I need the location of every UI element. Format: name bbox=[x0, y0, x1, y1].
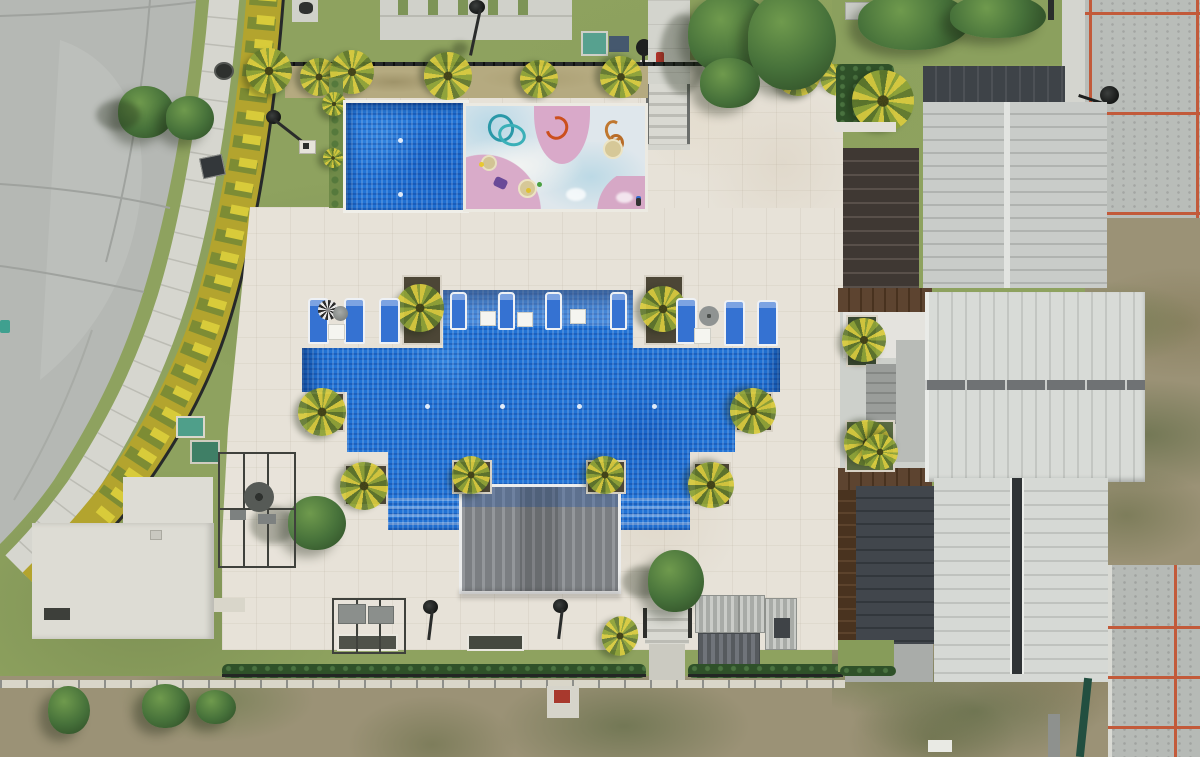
dot-yellow bbox=[479, 162, 484, 167]
wood-deck-north bbox=[838, 288, 932, 312]
gate-path bbox=[649, 644, 685, 684]
lap-pool bbox=[343, 100, 469, 213]
pool-step-entry bbox=[388, 498, 464, 530]
in-water-table bbox=[517, 312, 533, 327]
patio-grass-joint bbox=[458, 0, 468, 15]
side-table bbox=[694, 328, 711, 344]
parking-lot-southeast bbox=[1108, 565, 1200, 757]
stall-line bbox=[1108, 676, 1200, 679]
tree-large bbox=[700, 58, 760, 108]
canopy-shadow bbox=[459, 590, 621, 599]
tree bbox=[648, 550, 704, 612]
stall-line bbox=[1108, 626, 1200, 629]
in-water-lounger bbox=[498, 292, 515, 330]
iron-fence-south bbox=[222, 674, 646, 677]
iron-fence-south bbox=[688, 674, 843, 677]
bench bbox=[467, 634, 524, 651]
aerial-pool-scene bbox=[0, 0, 1200, 757]
fence-stub bbox=[1048, 0, 1054, 20]
tree bbox=[142, 684, 190, 728]
white-flat-roof-main bbox=[32, 523, 214, 639]
patio-grass-joint bbox=[398, 0, 408, 15]
spa-pad-teal bbox=[581, 31, 608, 56]
gray-lounger bbox=[368, 606, 394, 624]
slat-lounger-pair bbox=[698, 633, 760, 667]
tree-shadow bbox=[96, 100, 140, 130]
shade-canopy bbox=[459, 484, 621, 594]
splash-pad bbox=[463, 103, 648, 212]
roof-skylight-channel bbox=[1010, 478, 1024, 674]
roof-pad bbox=[44, 608, 70, 620]
dot-green bbox=[537, 182, 542, 187]
white-flat-roof-wing bbox=[123, 477, 213, 525]
teal-marker bbox=[0, 320, 10, 333]
gate-railing bbox=[688, 608, 692, 638]
roof-light-ribbed-north bbox=[923, 102, 1107, 288]
patio-grass-joint bbox=[428, 0, 438, 15]
spray-mist bbox=[616, 192, 633, 203]
side-table bbox=[328, 324, 345, 340]
pergola-dark-square bbox=[774, 618, 790, 638]
pool-light bbox=[398, 138, 403, 143]
lamp-base bbox=[303, 143, 309, 149]
roof-ridge-seam bbox=[1004, 102, 1010, 288]
road-tree bbox=[166, 96, 214, 140]
palm-tree bbox=[396, 284, 444, 332]
person bbox=[636, 198, 641, 206]
tree bbox=[48, 686, 90, 734]
white-pad bbox=[928, 740, 952, 752]
pool-light bbox=[425, 404, 430, 409]
deck-lounger bbox=[379, 298, 400, 344]
south-gate-steps bbox=[645, 610, 689, 644]
planter-edge bbox=[834, 122, 896, 132]
canopy-center-band bbox=[520, 487, 558, 591]
gray-lounger bbox=[338, 604, 366, 624]
sign-red-marker bbox=[553, 689, 571, 704]
slat-pergola-panel bbox=[739, 595, 765, 633]
path-stub bbox=[1048, 714, 1060, 757]
patio-grass-joint bbox=[518, 0, 528, 15]
roof-charcoal-seamed bbox=[923, 66, 1065, 104]
slat-pergola-panel bbox=[695, 595, 739, 633]
spray-dome-tan bbox=[603, 139, 623, 159]
in-water-table bbox=[480, 311, 496, 326]
stall-line bbox=[1108, 726, 1200, 729]
palm-tree bbox=[452, 456, 490, 494]
roof-vent bbox=[150, 530, 162, 540]
gravel-strip bbox=[0, 680, 845, 688]
in-water-lounger bbox=[545, 292, 562, 330]
pool-light bbox=[652, 404, 657, 409]
gray-umbrella bbox=[699, 306, 719, 326]
round-table bbox=[333, 306, 348, 321]
closed-umbrella bbox=[244, 482, 274, 512]
stall-line bbox=[1196, 0, 1199, 218]
stall-line bbox=[1085, 12, 1200, 15]
in-water-lounger bbox=[610, 292, 627, 330]
gray-chair bbox=[258, 514, 276, 524]
stall-line bbox=[1174, 565, 1177, 757]
tree bbox=[196, 690, 236, 724]
in-water-table bbox=[570, 309, 586, 324]
manhole-cover bbox=[214, 62, 234, 80]
deck-lounger bbox=[757, 300, 778, 346]
dot-yellow bbox=[526, 188, 531, 193]
spray-mist bbox=[566, 188, 586, 201]
patio-joint-line bbox=[380, 15, 572, 17]
pool-light bbox=[577, 404, 582, 409]
gate-railing bbox=[643, 608, 647, 638]
lamp-post-north bbox=[469, 0, 485, 14]
deck-lounger bbox=[724, 300, 745, 346]
clubhouse-stairs bbox=[866, 364, 896, 424]
roof-center-gutter bbox=[925, 380, 1145, 390]
pool-light bbox=[500, 404, 505, 409]
hedge-stub bbox=[840, 666, 896, 676]
spa-pad-green bbox=[190, 440, 220, 464]
tree bbox=[288, 496, 346, 550]
roof-brown-wing bbox=[843, 148, 919, 288]
wood-wall-strip bbox=[838, 490, 858, 642]
tanning-ledge bbox=[443, 290, 633, 326]
frame-bar bbox=[267, 454, 269, 566]
deck-lounger bbox=[344, 298, 365, 344]
pool-light bbox=[398, 192, 403, 197]
patio-grass-joint bbox=[488, 0, 498, 15]
in-water-lounger bbox=[450, 292, 467, 330]
gray-chair bbox=[230, 510, 246, 520]
spa-pad-teal bbox=[176, 416, 205, 438]
grill bbox=[299, 2, 313, 14]
pool-step-entry bbox=[612, 498, 690, 530]
roof-charcoal-ribbed-south bbox=[856, 486, 934, 644]
palm-tree bbox=[246, 48, 292, 94]
blue-mat bbox=[609, 36, 629, 52]
